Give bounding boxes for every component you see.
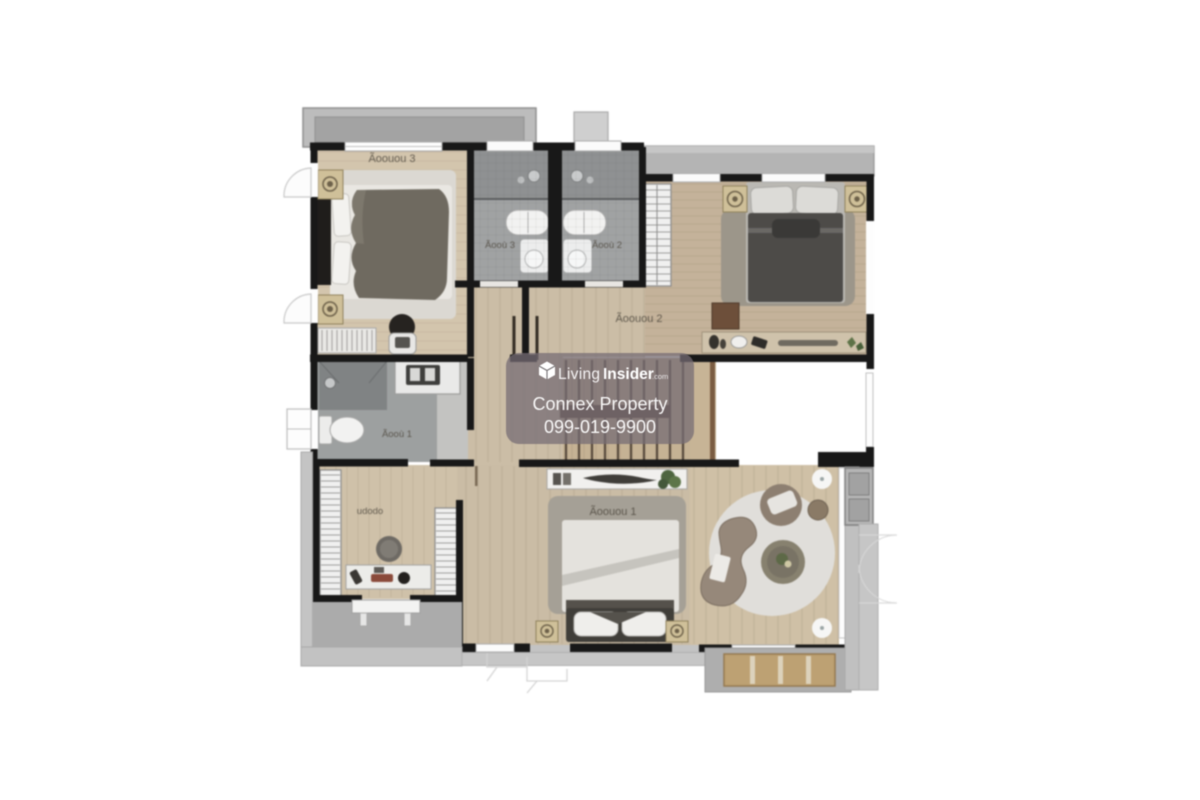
svg-text:099-019-9900: 099-019-9900 [544, 417, 656, 437]
svg-text:Ãooù 2: Ãooù 2 [592, 240, 622, 251]
svg-text:Living: Living [558, 366, 600, 383]
svg-text:.com: .com [652, 372, 668, 381]
svg-text:Ãoouou 2: Ãoouou 2 [615, 312, 662, 325]
svg-text:Ãooù 1: Ãooù 1 [382, 429, 412, 440]
svg-text:Ãooù 3: Ãooù 3 [485, 240, 515, 251]
svg-text:Ãoouou 1: Ãoouou 1 [589, 505, 636, 518]
svg-text:Connex Property: Connex Property [532, 394, 667, 414]
svg-text:udodo: udodo [357, 506, 383, 517]
svg-text:Insider: Insider [603, 366, 654, 383]
svg-text:Ãoouou 3: Ãoouou 3 [368, 152, 415, 165]
